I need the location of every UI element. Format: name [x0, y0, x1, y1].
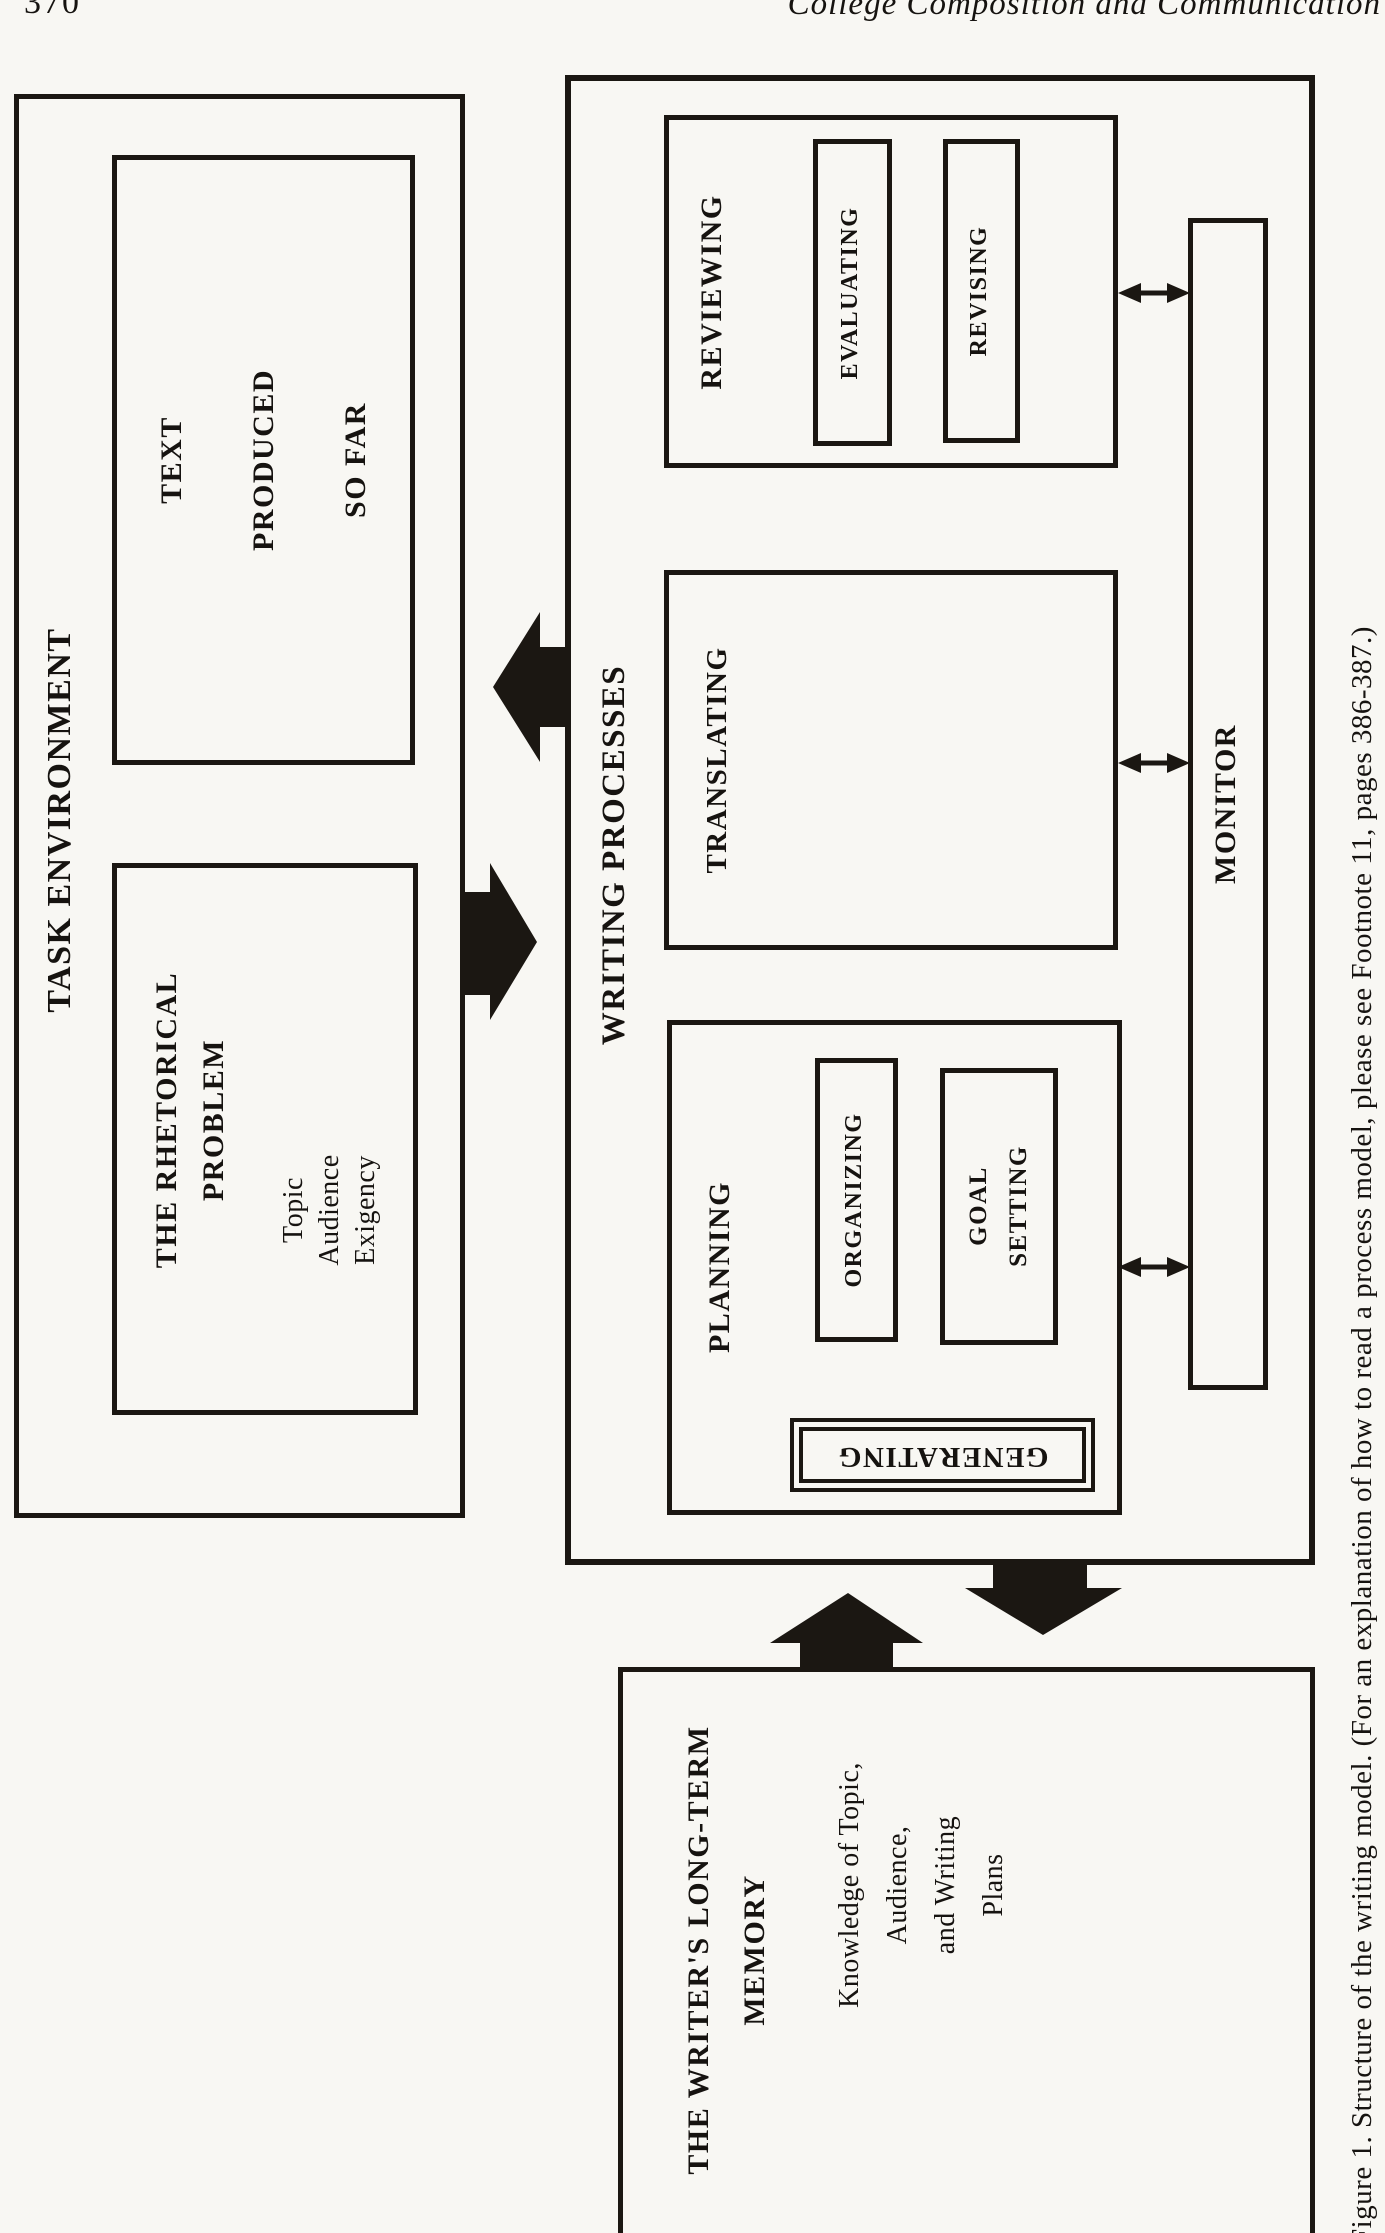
writing-processes-label: WRITING PROCESSES: [595, 595, 639, 1115]
journal-running-head: College Composition and Communication: [788, 0, 1381, 23]
organizing-label: ORGANIZING: [840, 1065, 874, 1335]
translating-label: TRANSLATING: [700, 580, 740, 940]
planning-label: PLANNING: [702, 1102, 742, 1432]
reviewing-label: REVIEWING: [694, 127, 734, 457]
rhetorical-problem-items: Topic Audience Exigency: [276, 1000, 384, 1420]
monitor-label: MONITOR: [1208, 654, 1248, 954]
rhetorical-problem-heading: THE RHETORICAL PROBLEM: [143, 860, 237, 1380]
text-produced-so-far-label: TEXT PRODUCED SO FAR: [126, 180, 402, 740]
task-to-writing-block-arrow: [464, 863, 537, 1020]
task-environment-label: TASK ENVIRONMENT: [40, 510, 84, 1130]
writing-to-task-block-arrow: [493, 612, 565, 762]
scanned-paper-page: 370 College Composition and Communicatio…: [0, 0, 1385, 2233]
long-term-memory-body: Knowledge of Topic, Audience, and Writin…: [826, 1625, 1018, 2145]
revising-label: REVISING: [965, 146, 999, 436]
goal-setting-label: GOAL SETTING: [959, 1071, 1039, 1341]
figure-caption: Figure 1. Structure of the writing model…: [1342, 45, 1382, 2233]
page-number: 370: [24, 0, 81, 22]
evaluating-label: EVALUATING: [836, 148, 870, 438]
generating-label: GENERATING: [798, 1437, 1088, 1473]
long-term-memory-heading: THE WRITER'S LONG-TERM MEMORY: [671, 1650, 783, 2233]
